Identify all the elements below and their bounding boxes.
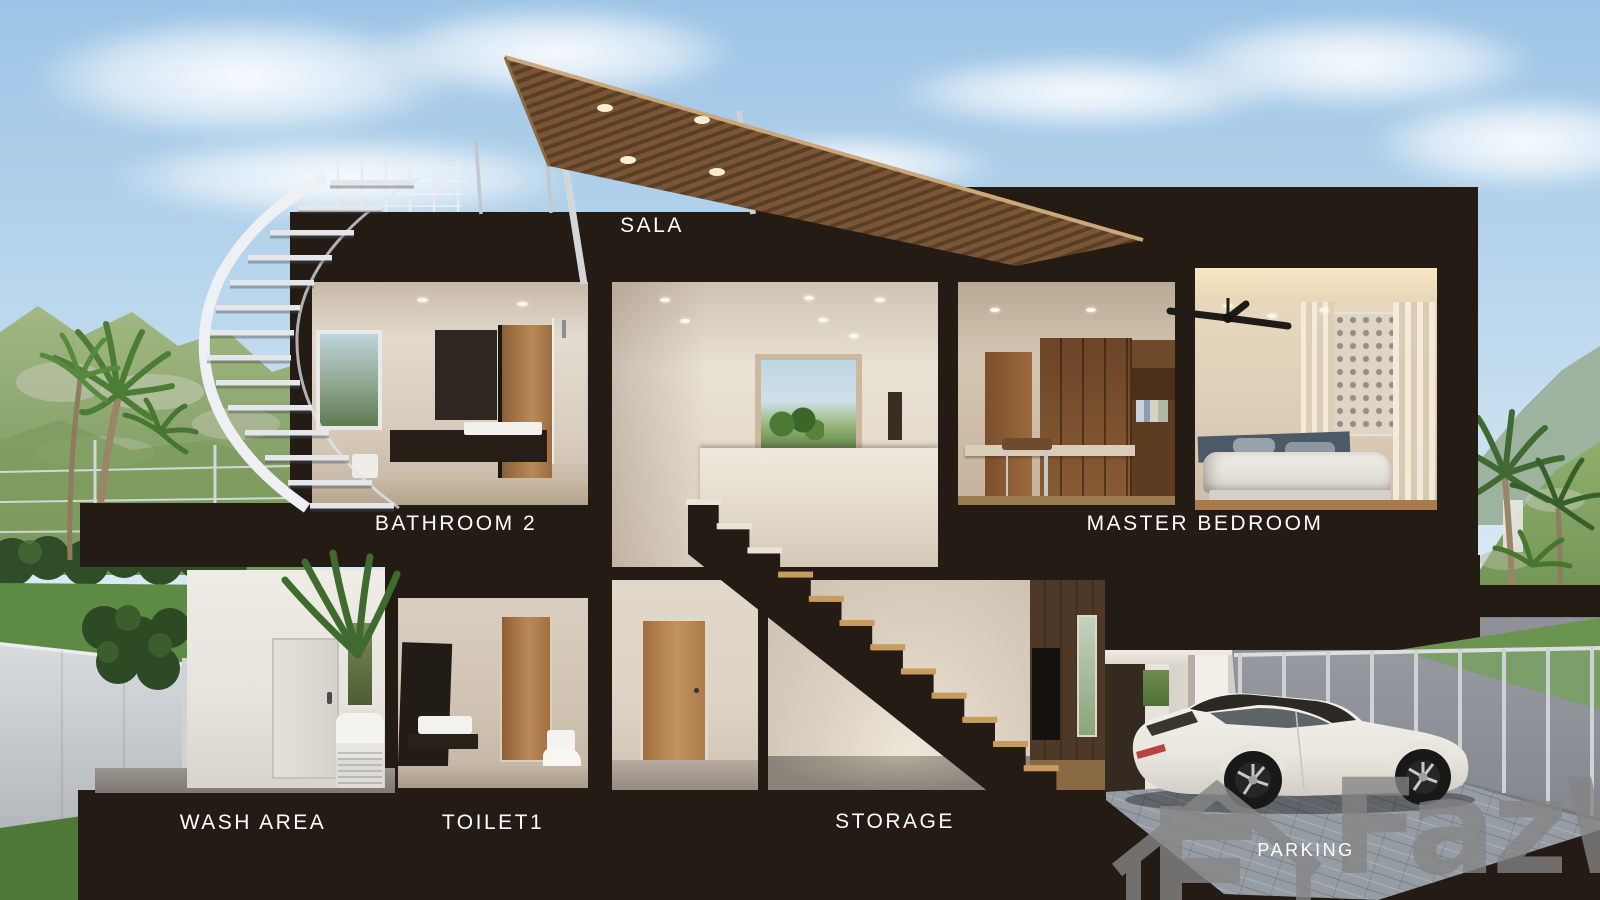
room-label-wash-area: WASH AREA — [180, 811, 327, 835]
room-label-parking: PARKING — [1257, 840, 1354, 861]
room-label-bathroom-2: BATHROOM 2 — [375, 512, 537, 536]
room-label-storage: STORAGE — [835, 810, 955, 834]
villa-cross-section-render: FazWaz SALA BATHROOM 2 MASTER BEDROOM WA… — [0, 0, 1600, 900]
room-label-sala: SALA — [620, 214, 684, 238]
room-label-toilet-1: TOILET1 — [442, 811, 544, 835]
fazwaz-watermark-text: FazWaz — [1330, 762, 1600, 894]
room-label-master-bedroom: MASTER BEDROOM — [1087, 512, 1324, 536]
